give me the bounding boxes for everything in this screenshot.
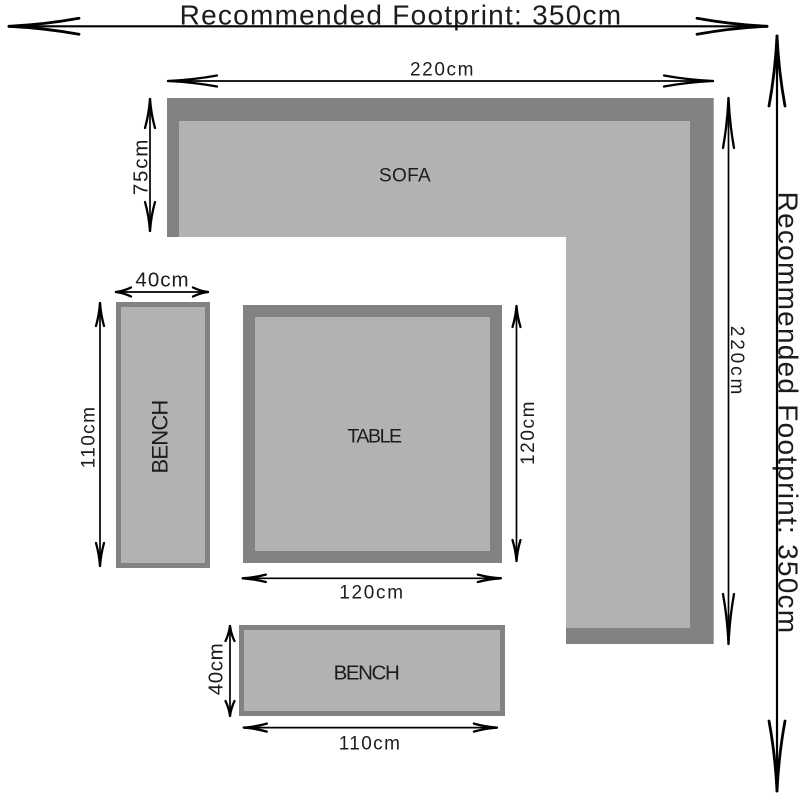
svg-text:BENCH: BENCH [148,400,173,473]
svg-text:40cm: 40cm [135,269,189,292]
svg-text:SOFA: SOFA [379,166,431,187]
svg-text:110cm: 110cm [79,406,100,469]
svg-text:75cm: 75cm [130,138,153,195]
svg-text:120cm: 120cm [518,400,539,465]
svg-text:120cm: 120cm [339,583,405,604]
svg-text:TABLE: TABLE [347,426,402,448]
svg-text:BENCH: BENCH [334,662,399,685]
svg-text:40cm: 40cm [205,643,228,696]
svg-text:110cm: 110cm [339,734,402,755]
svg-text:220cm: 220cm [410,60,475,81]
svg-text:220cm: 220cm [726,326,747,398]
